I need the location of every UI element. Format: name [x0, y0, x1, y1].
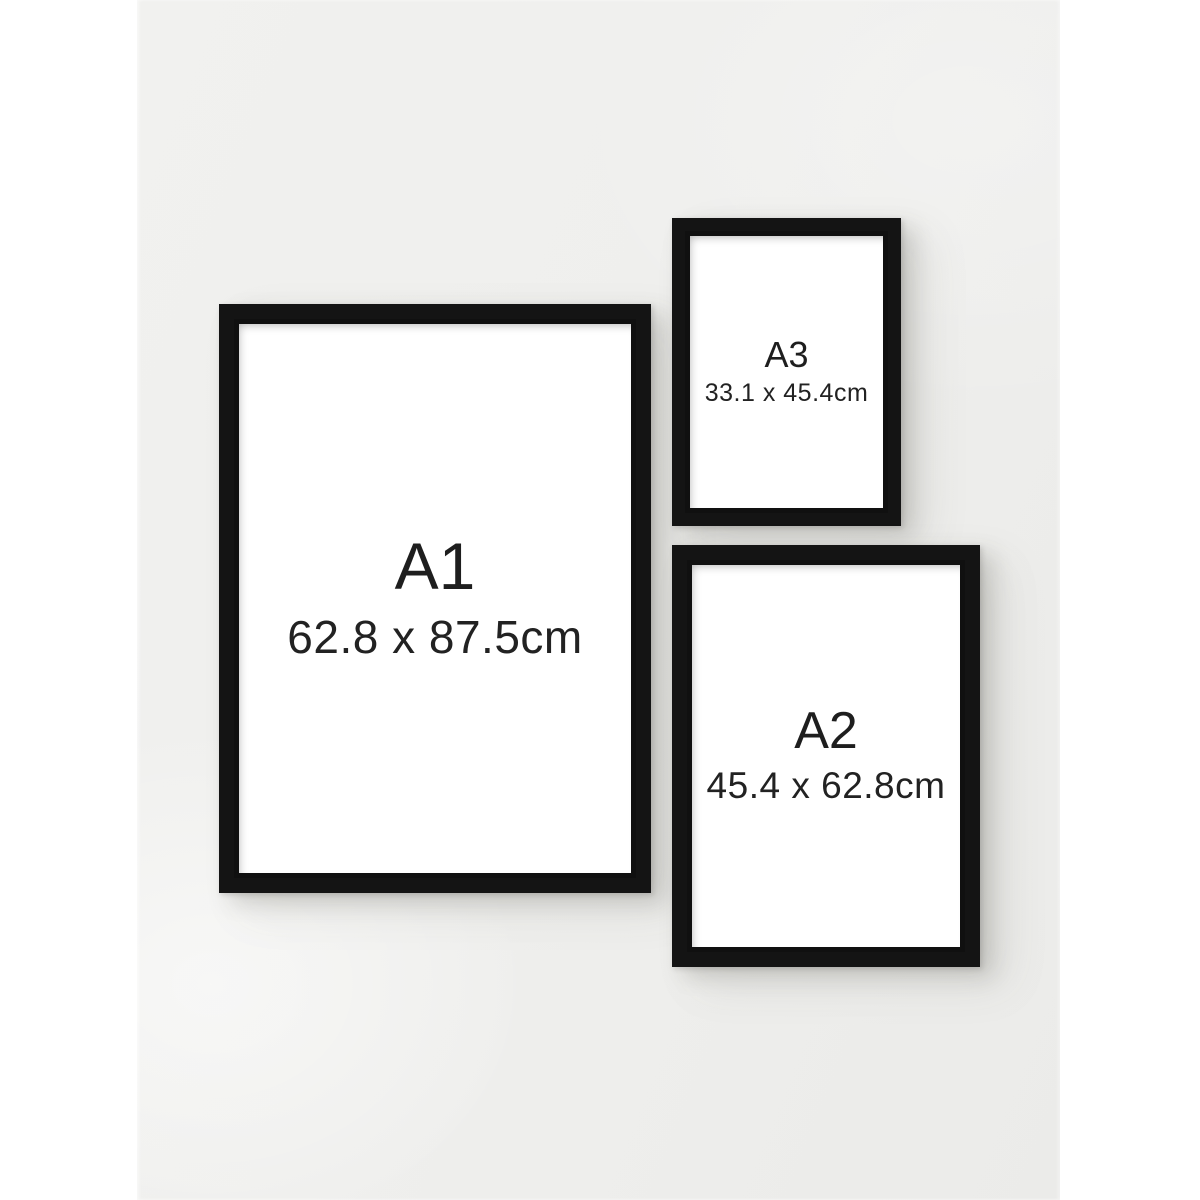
- frame-a3-mat: A3 33.1 x 45.4cm: [685, 231, 888, 513]
- frame-a2-dimensions: 45.4 x 62.8cm: [707, 764, 946, 808]
- frame-a1-dimensions: 62.8 x 87.5cm: [287, 610, 582, 665]
- frame-a2: A2 45.4 x 62.8cm: [672, 545, 980, 967]
- size-guide-image: A1 62.8 x 87.5cm A3 33.1 x 45.4cm A2 45.…: [0, 0, 1200, 1200]
- frame-a3-dimensions: 33.1 x 45.4cm: [705, 378, 869, 408]
- frame-a1: A1 62.8 x 87.5cm: [219, 304, 651, 893]
- frame-a3: A3 33.1 x 45.4cm: [672, 218, 901, 526]
- frame-a1-mat: A1 62.8 x 87.5cm: [234, 319, 636, 878]
- frame-a2-mat: A2 45.4 x 62.8cm: [687, 560, 965, 952]
- frame-a1-size-label: A1: [395, 532, 476, 601]
- frame-a2-size-label: A2: [794, 704, 858, 759]
- frame-a3-size-label: A3: [764, 336, 808, 374]
